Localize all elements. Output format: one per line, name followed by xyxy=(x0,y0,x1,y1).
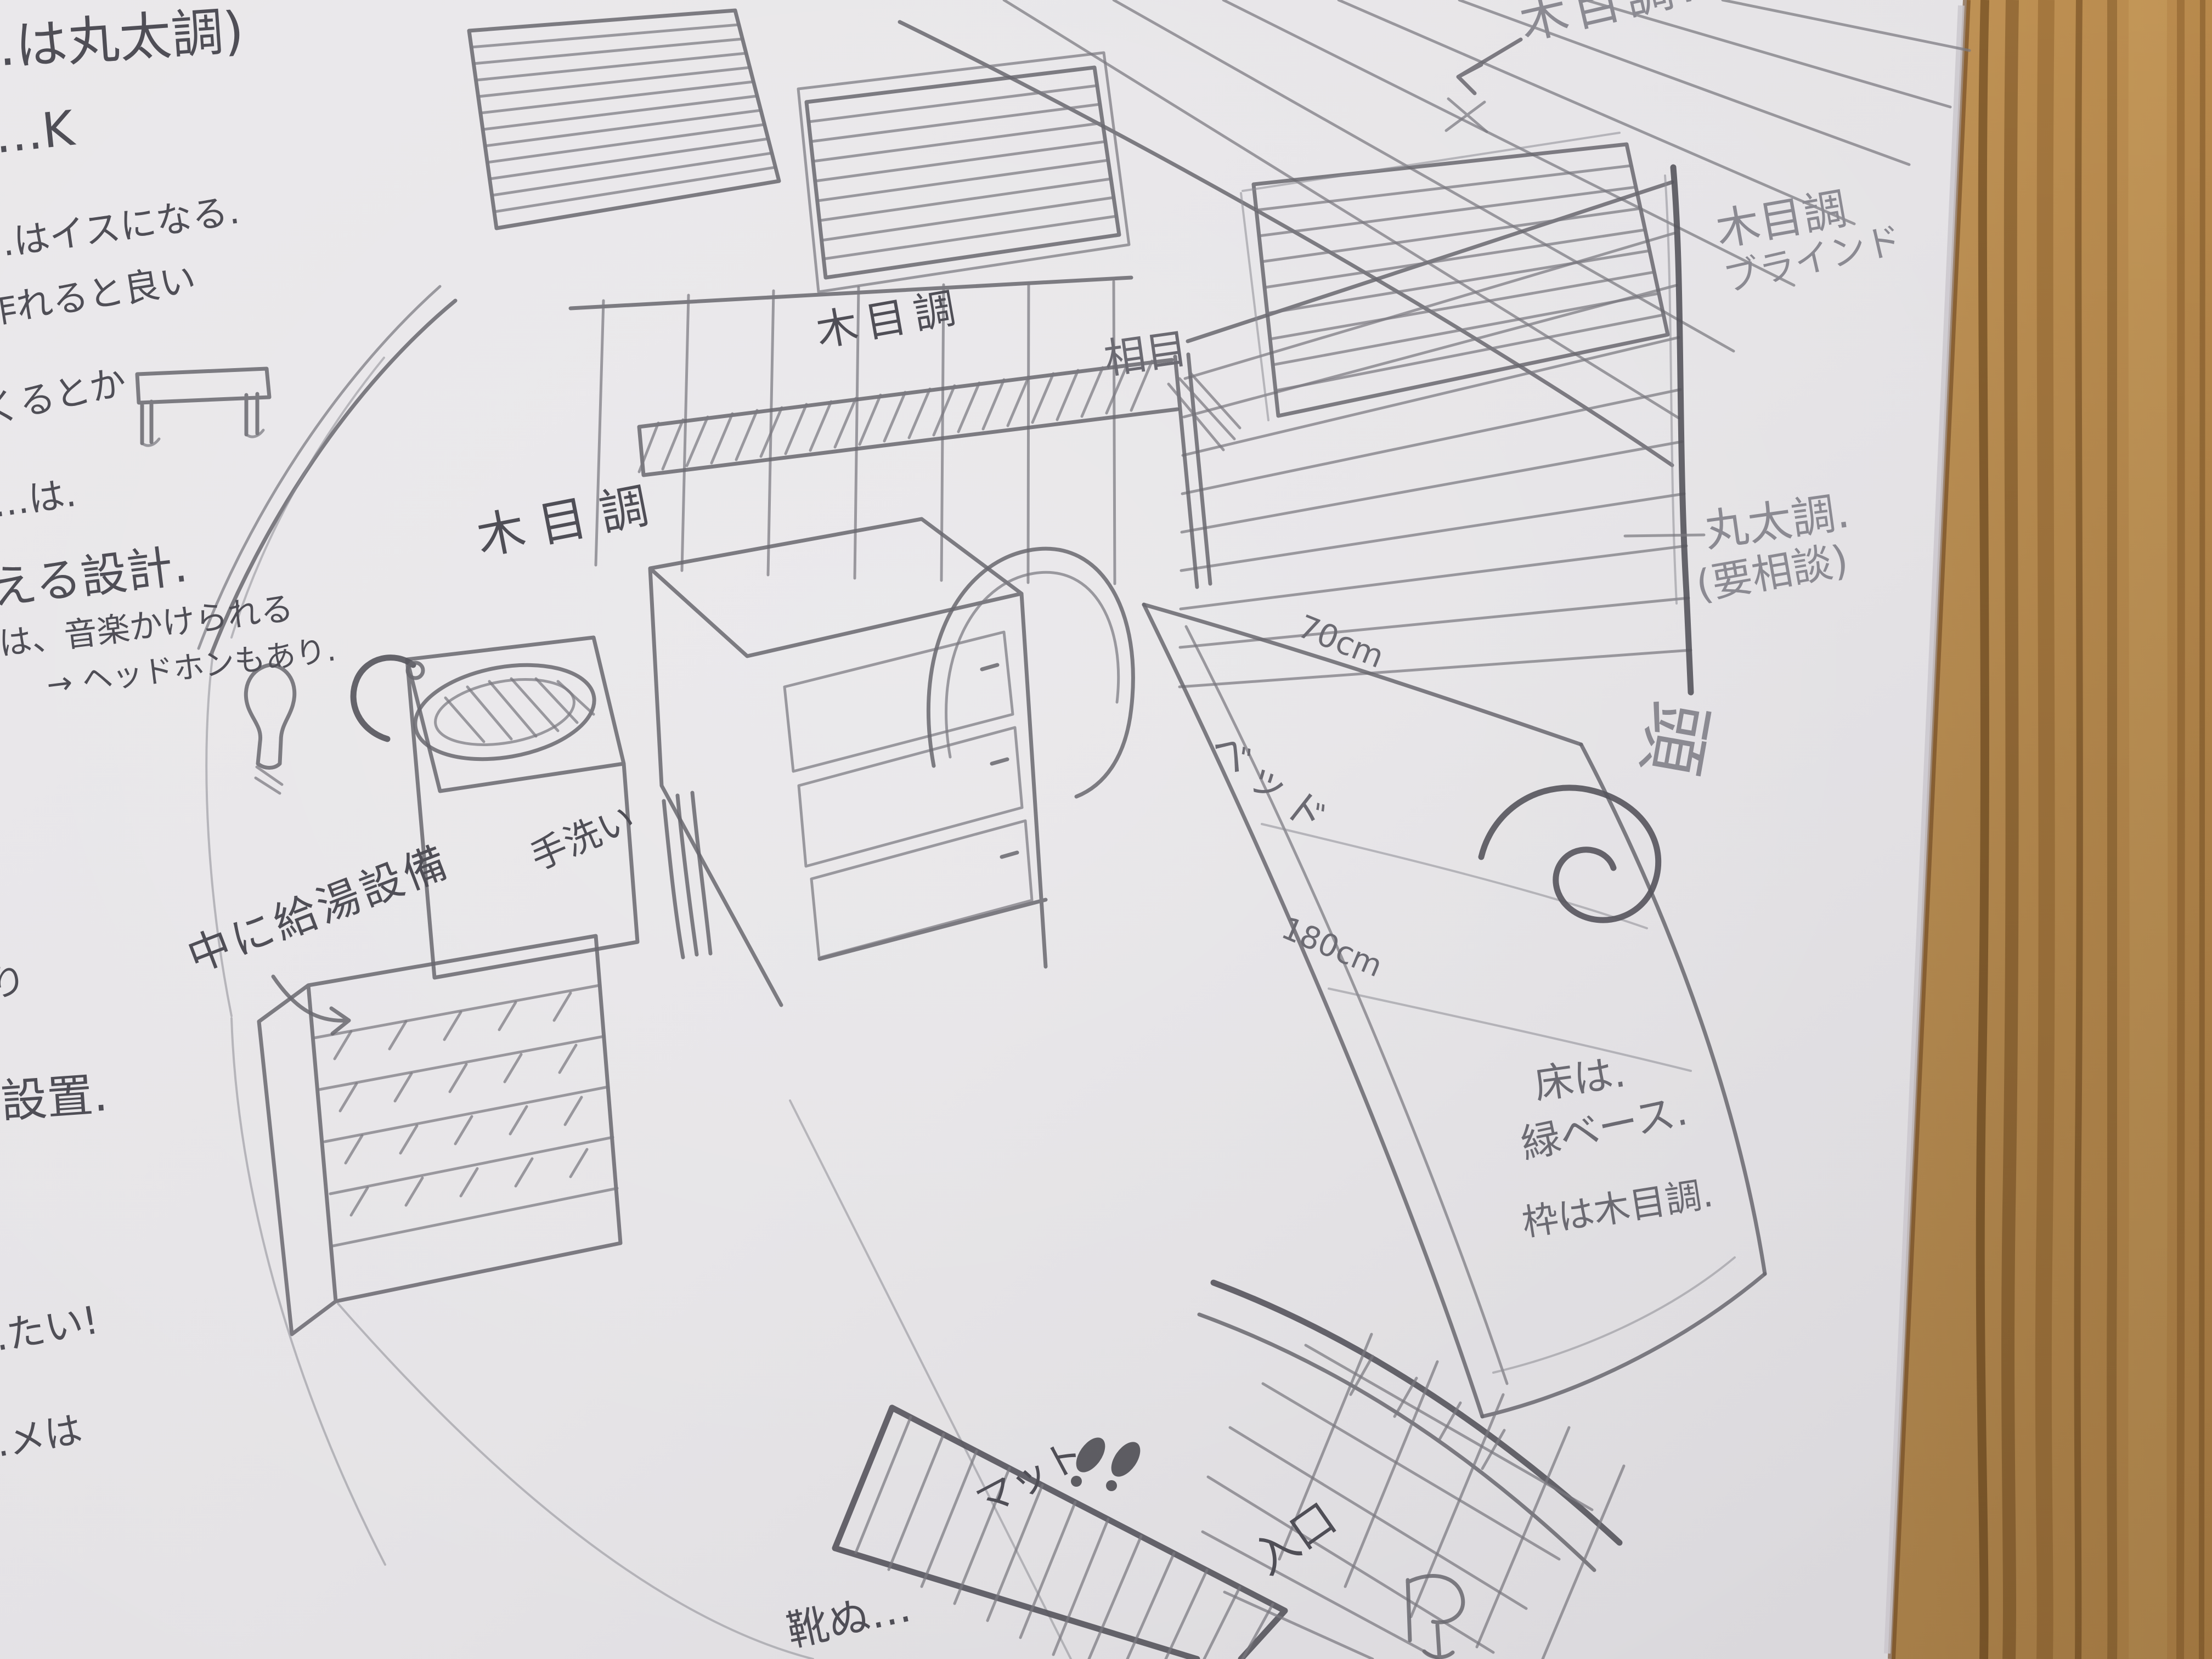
label-handwash: 手洗い xyxy=(526,800,640,876)
note-kuru: くるとか xyxy=(0,364,129,429)
handwritten-annotations: …は丸太調) …K …はイスになる. 作れると良い くるとか …は. …える設計… xyxy=(0,0,2212,1659)
note-setchi: …設置. xyxy=(0,1071,109,1128)
label-mokume-topright: 木目調. xyxy=(1515,0,1703,47)
note-ri: り xyxy=(0,963,28,1003)
note-chair-1: …はイスになる. xyxy=(0,193,242,265)
note-log-top: …は丸太調) xyxy=(0,5,245,76)
label-entrance: 入口 xyxy=(1246,1496,1344,1582)
note-meha: …メは xyxy=(0,1412,85,1468)
label-mokume-cabinet: 木目調 xyxy=(813,286,966,353)
label-hot-water: 中に給湯設備 xyxy=(182,840,455,979)
note-ok: …K xyxy=(0,104,76,161)
note-ha: …は. xyxy=(0,476,78,523)
label-aime-rail: 相目 xyxy=(1102,328,1190,380)
note-shoes: 靴ぬ… xyxy=(783,1586,915,1653)
label-mokume-wall: 木目調 xyxy=(473,479,667,562)
label-floor-3: 枠は木目調. xyxy=(1520,1176,1716,1242)
label-head: 頭 xyxy=(1632,696,1716,780)
label-mat: マット xyxy=(970,1434,1090,1521)
label-length-180cm: 180cm xyxy=(1277,913,1386,983)
label-bed: ベッド xyxy=(1204,725,1340,844)
note-tai: …たい! xyxy=(0,1301,101,1361)
label-width-70cm: 70cm xyxy=(1294,610,1388,673)
label-floor-1: 床は. xyxy=(1532,1053,1628,1105)
photo-of-room-sketch: …は丸太調) …K …はイスになる. 作れると良い くるとか …は. …える設計… xyxy=(0,0,2212,1659)
note-chair-2: 作れると良い xyxy=(0,261,198,331)
